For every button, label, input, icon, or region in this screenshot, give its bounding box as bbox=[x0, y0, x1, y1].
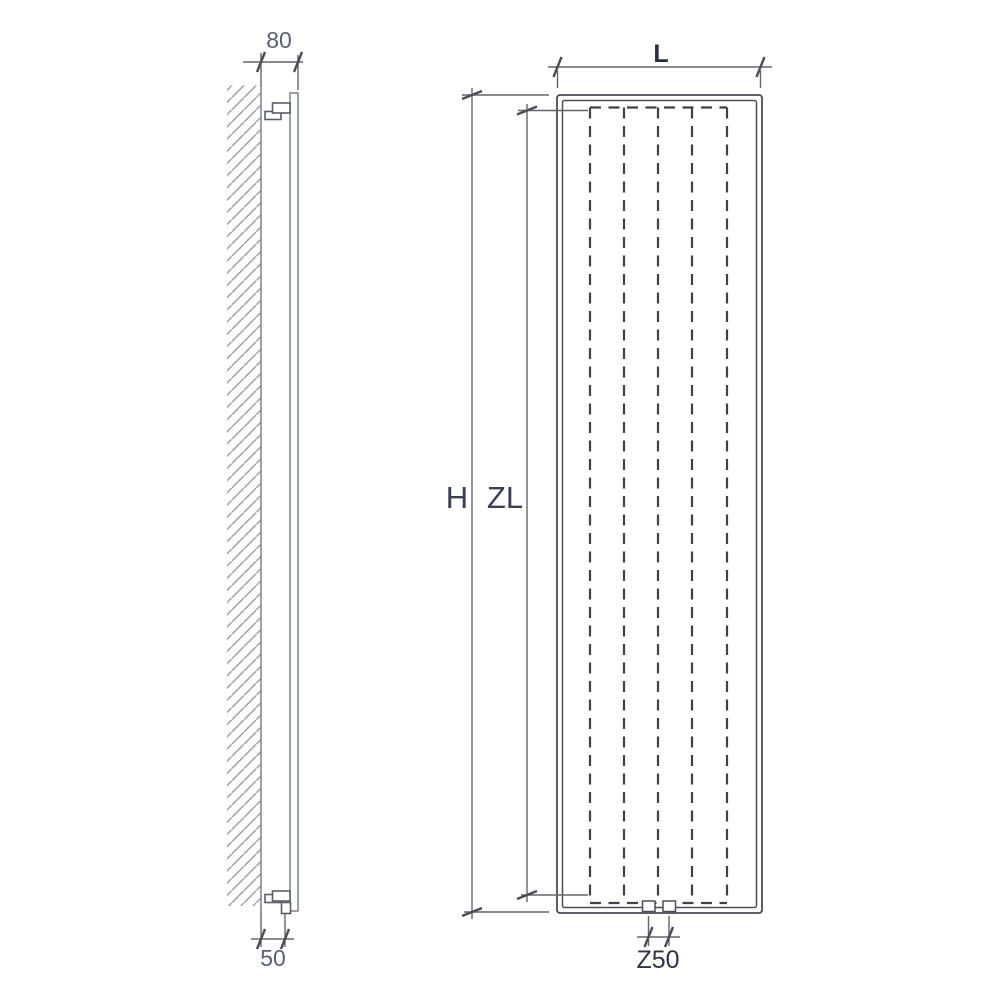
bottom-connection-stub bbox=[282, 903, 291, 914]
wall-hatching bbox=[227, 85, 262, 906]
dim-L-label: L bbox=[653, 40, 668, 68]
dimension-L: L bbox=[548, 40, 772, 88]
radiator-dimension-drawing: 80 50 bbox=[0, 0, 1000, 1000]
dim-50-label: 50 bbox=[260, 945, 286, 971]
dim-H-label: H bbox=[446, 480, 468, 515]
top-wall-bracket bbox=[265, 103, 290, 120]
dimension-50: 50 bbox=[251, 906, 294, 971]
dimension-80: 80 bbox=[243, 27, 303, 90]
top-bracket-plate bbox=[273, 103, 291, 113]
radiator-side-panel bbox=[290, 93, 298, 911]
dim-ZL-label: ZL bbox=[487, 480, 523, 515]
bottom-bracket-plate bbox=[273, 891, 291, 901]
front-view: L H ZL Z50 bbox=[446, 40, 772, 974]
side-view: 80 50 bbox=[227, 27, 303, 971]
dim-Z50-label: Z50 bbox=[636, 946, 679, 974]
radiator-front-outline bbox=[557, 95, 762, 913]
technical-drawing-page: 80 50 bbox=[0, 0, 1000, 1000]
bottom-wall-bracket bbox=[265, 891, 290, 903]
connector-left bbox=[643, 901, 656, 912]
dim-80-label: 80 bbox=[266, 27, 292, 53]
dimension-Z50: Z50 bbox=[636, 916, 680, 974]
connector-right bbox=[663, 901, 676, 912]
